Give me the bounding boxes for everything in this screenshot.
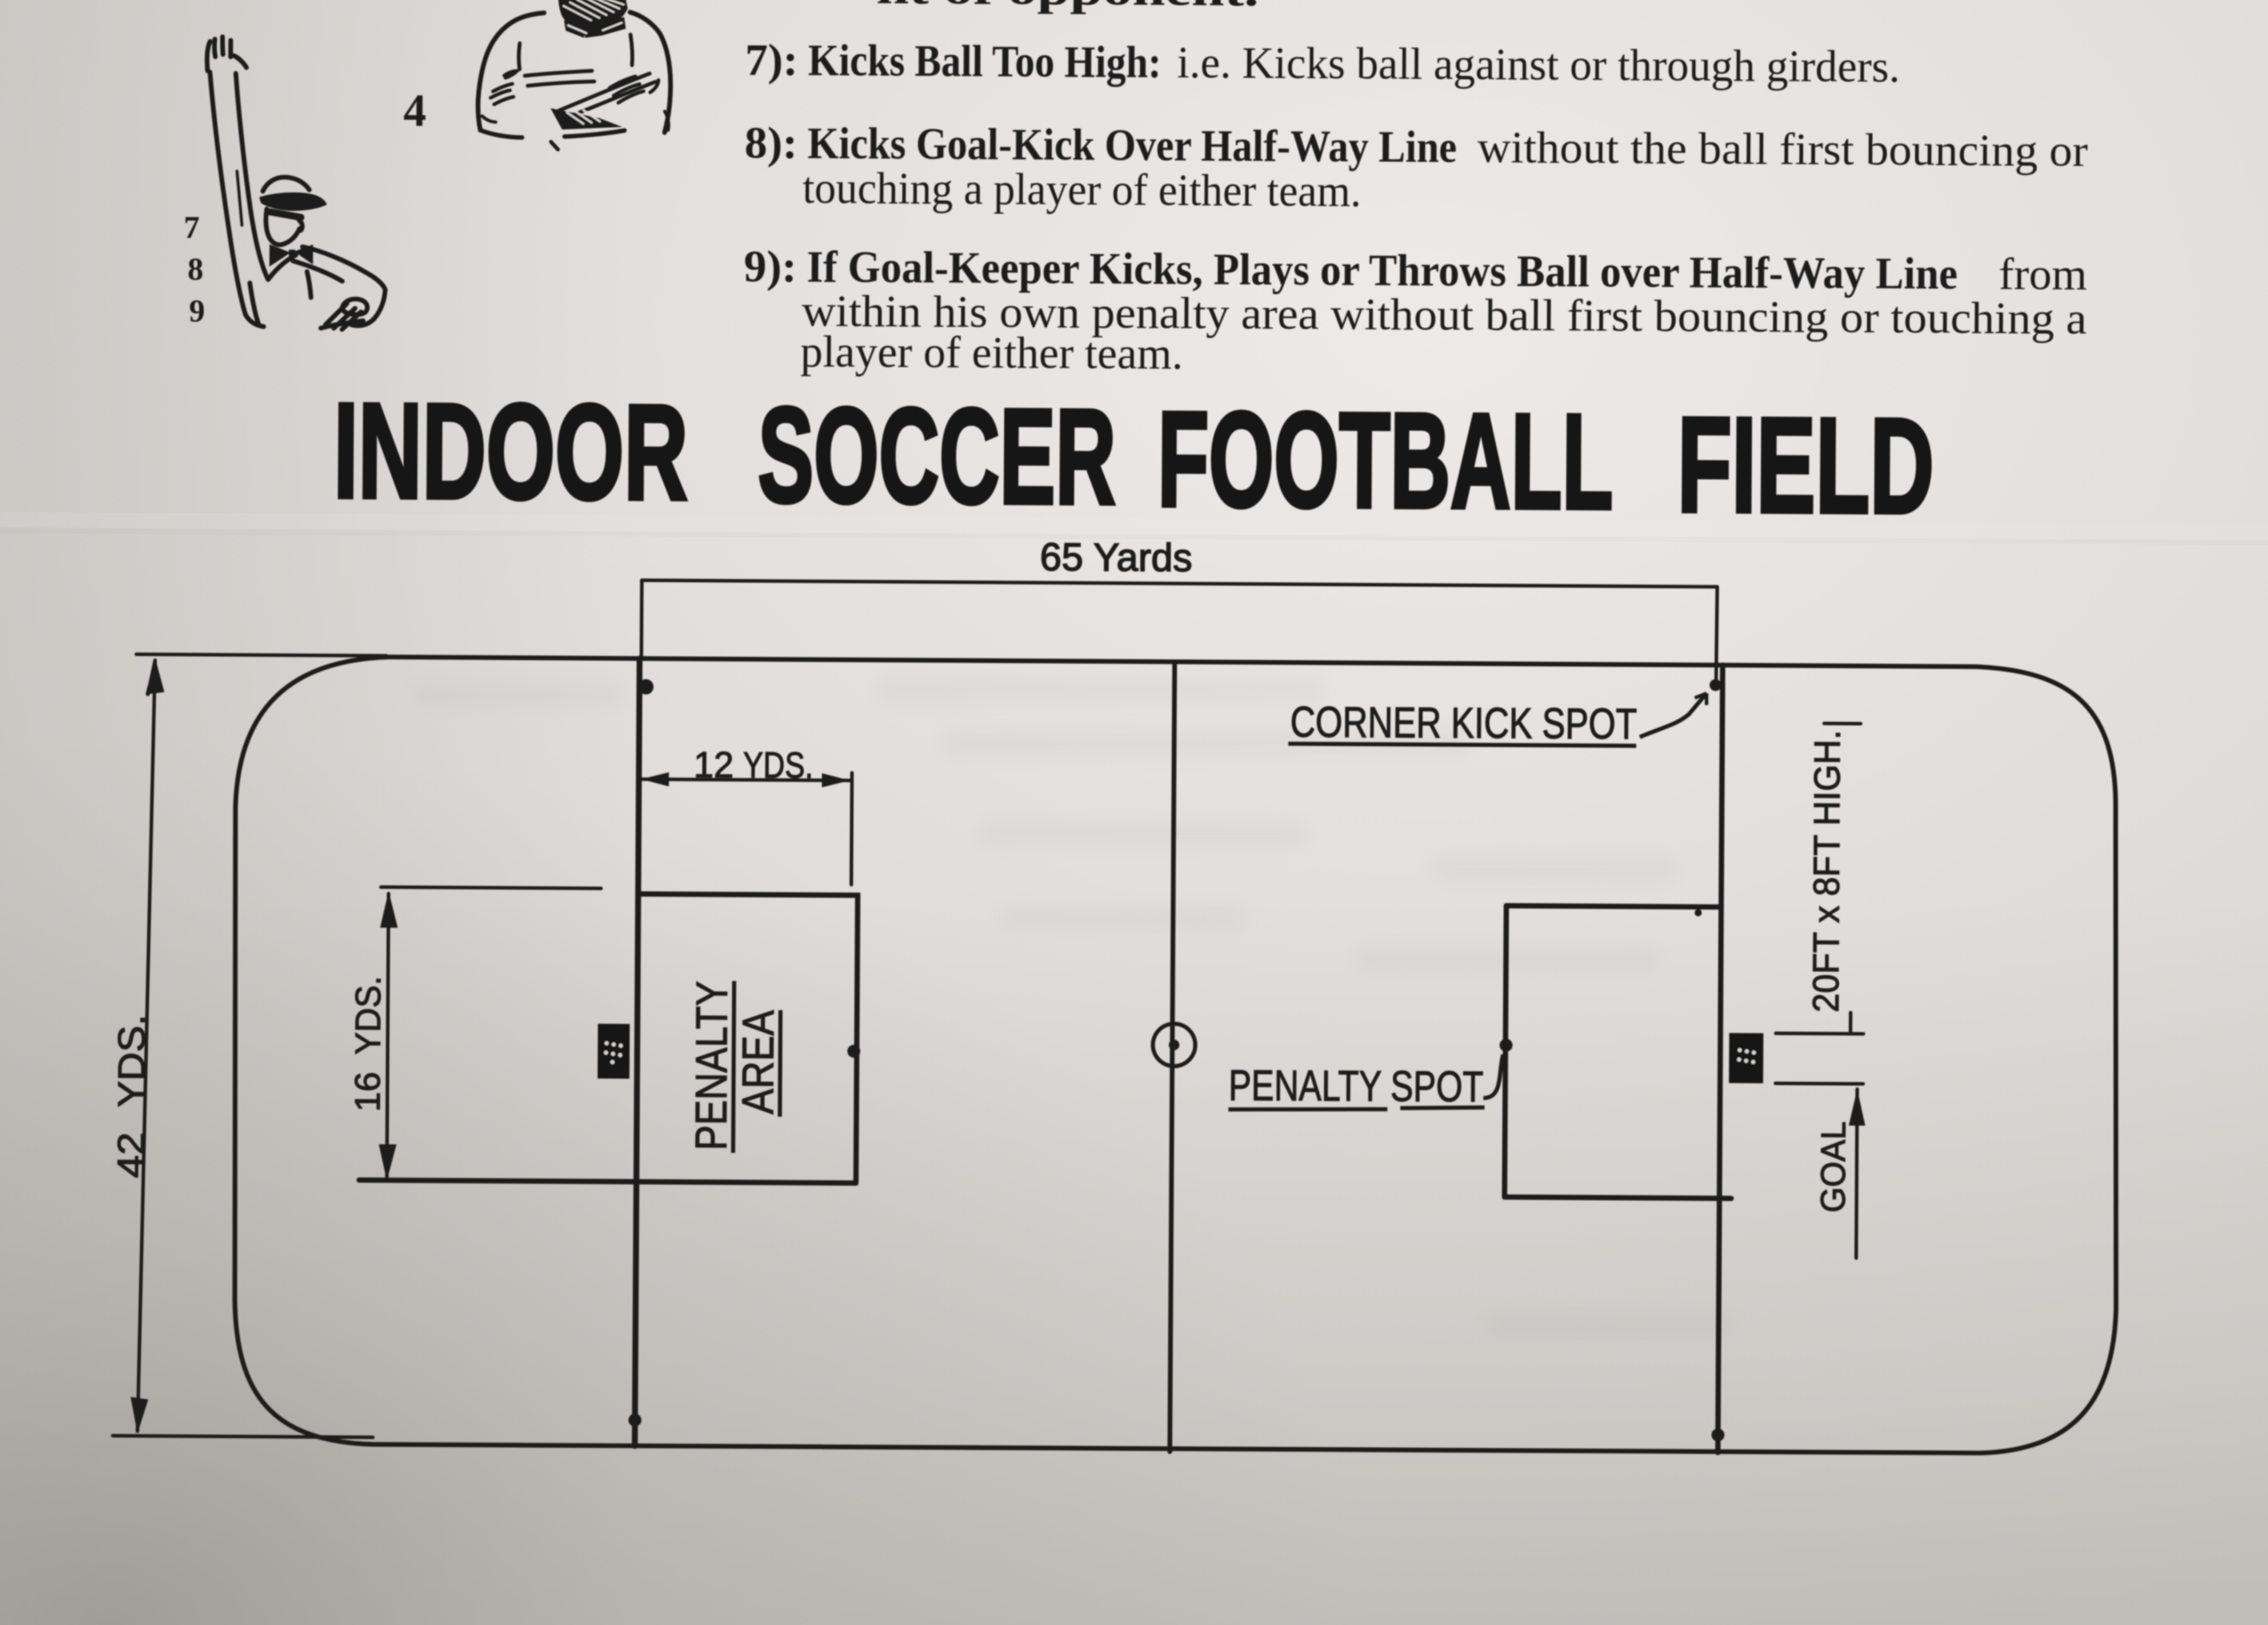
svg-text:i.e. Kicks ball against or th: i.e. Kicks ball against or through girde… xyxy=(1177,38,1900,91)
svg-text:YDS.: YDS. xyxy=(110,1014,153,1107)
svg-text:CORNER KICK SPOT: CORNER KICK SPOT xyxy=(1290,699,1637,749)
svg-text:9: 9 xyxy=(189,293,205,328)
svg-text:12: 12 xyxy=(693,745,733,785)
svg-text:20FT x 8FT HIGH.: 20FT x 8FT HIGH. xyxy=(1806,730,1848,1012)
svg-text:AREA: AREA xyxy=(733,1010,783,1115)
svg-text:65 Yards: 65 Yards xyxy=(1040,535,1192,580)
svg-text:Kicks Ball Too High:: Kicks Ball Too High: xyxy=(808,36,1162,88)
svg-text:YDS.: YDS. xyxy=(743,745,813,786)
svg-text:8):: 8): xyxy=(745,118,798,168)
svg-text:SOCCER: SOCCER xyxy=(758,379,1117,533)
svg-text:nt of opponent.: nt of opponent. xyxy=(876,0,1259,15)
svg-text:16: 16 xyxy=(348,1072,387,1112)
svg-text:42: 42 xyxy=(109,1132,152,1178)
svg-text:PENALTY SPOT: PENALTY SPOT xyxy=(1228,1062,1483,1111)
svg-text:4: 4 xyxy=(403,84,427,135)
svg-text:YDS.: YDS. xyxy=(348,976,388,1055)
svg-text:FIELD: FIELD xyxy=(1677,389,1935,542)
svg-text:INDOOR: INDOOR xyxy=(333,375,689,529)
svg-text:9):: 9): xyxy=(743,242,797,292)
svg-text:7: 7 xyxy=(184,210,200,245)
svg-text:without the ball first bouncin: without the ball first bouncing or xyxy=(1477,123,2088,176)
svg-text:GOAL: GOAL xyxy=(1814,1121,1853,1212)
svg-text:PENALTY: PENALTY xyxy=(686,981,736,1151)
svg-text:touching a player of either te: touching a player of either team. xyxy=(802,164,1361,217)
svg-text:8: 8 xyxy=(187,251,203,287)
svg-text:from: from xyxy=(1998,250,2087,300)
svg-text:7):: 7): xyxy=(745,35,799,85)
svg-text:FOOTBALL: FOOTBALL xyxy=(1157,383,1614,537)
svg-text:player of either team.: player of either team. xyxy=(801,327,1184,379)
